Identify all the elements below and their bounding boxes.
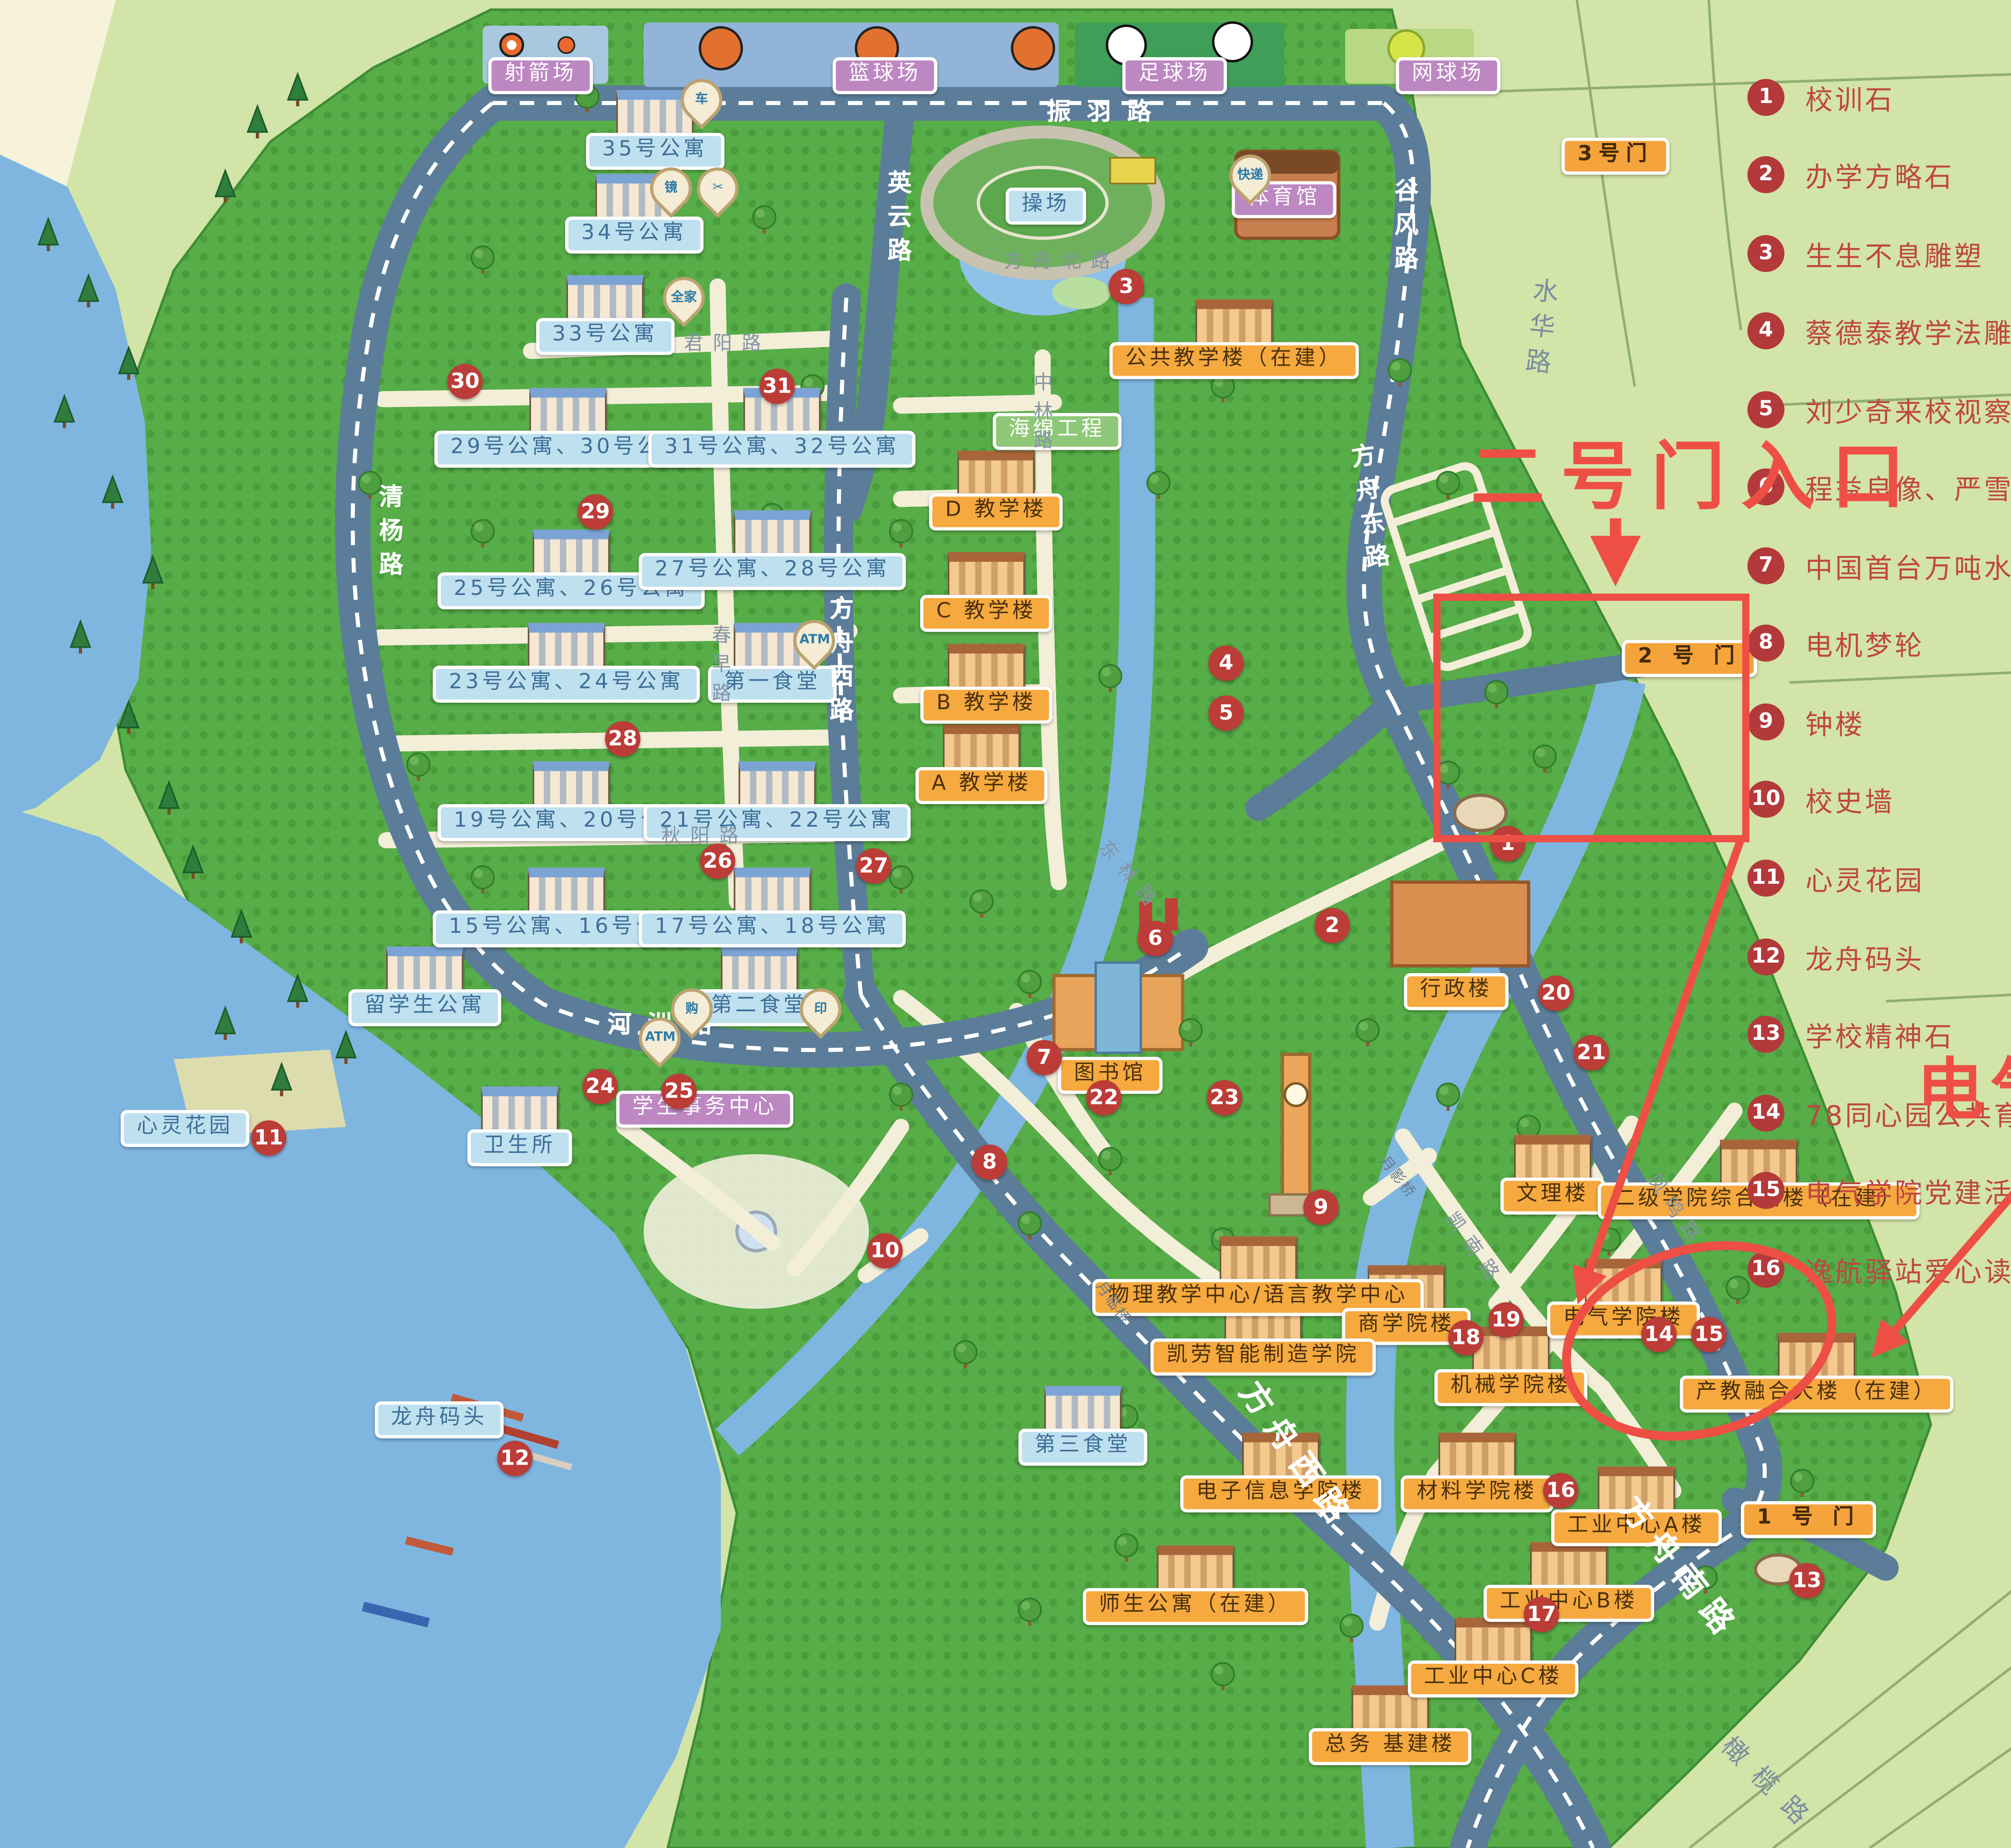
campus-map-screenshot: 射箭场篮球场足球场网球场体育馆操场35号公寓34号公寓33号公寓29号公寓、30… xyxy=(0,0,2011,1848)
campus-map-canvas: 射箭场篮球场足球场网球场体育馆操场35号公寓34号公寓33号公寓29号公寓、30… xyxy=(0,0,2011,1848)
report-location-annotation-line2: 电气学院楼303 xyxy=(1916,1036,2011,1134)
gate2-entrance-annotation: 二号门入口 xyxy=(1471,418,1921,525)
zone-legend: 行政教学区学生生活区师生文体区 xyxy=(0,0,2011,1848)
